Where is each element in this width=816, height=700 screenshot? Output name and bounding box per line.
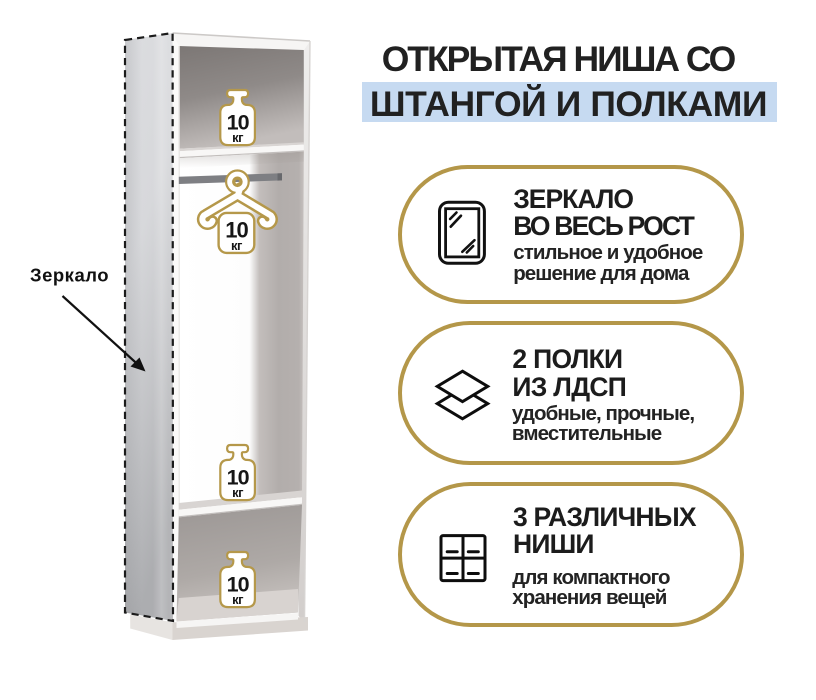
svg-text:Зеркало: Зеркало — [30, 265, 109, 286]
svg-text:кг: кг — [231, 238, 243, 253]
